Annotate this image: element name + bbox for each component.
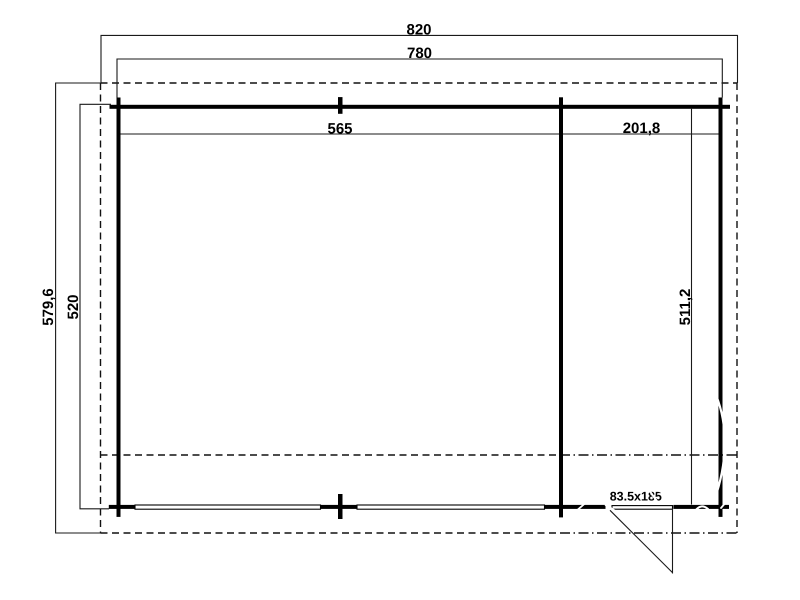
svg-text:520: 520 [65,294,82,319]
svg-text:579,6: 579,6 [40,288,57,326]
svg-text:820: 820 [406,22,431,39]
svg-text:780: 780 [407,45,432,62]
